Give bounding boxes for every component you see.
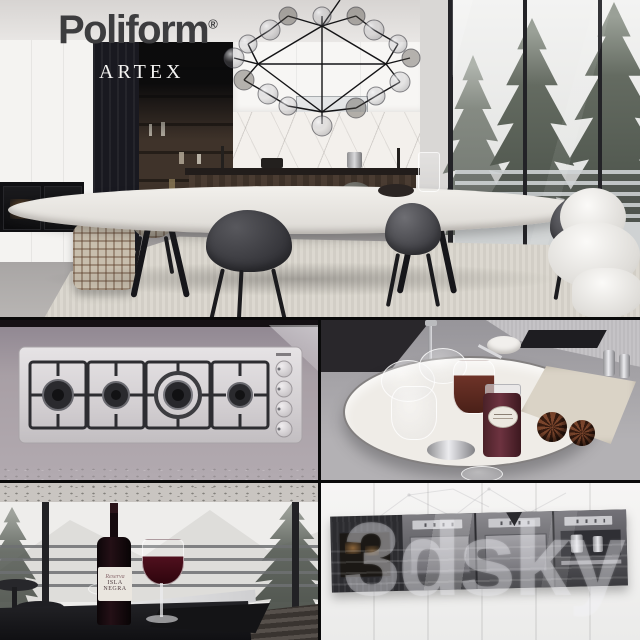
faucet-head <box>425 320 437 326</box>
hob-brand-mark <box>276 353 291 356</box>
kettle <box>347 152 362 168</box>
wine-label-script: Reserva <box>98 567 132 580</box>
chair-shell <box>385 203 441 255</box>
railing-post <box>42 502 49 614</box>
dining-chair-front <box>383 203 445 309</box>
faucet <box>221 146 224 168</box>
dining-chair-front <box>202 210 298 317</box>
watermark: 3dsky <box>343 501 623 620</box>
wine-bottle: Reserva ISLA NEGRA <box>96 503 132 625</box>
chair-leg <box>207 268 225 317</box>
panel-gas-hob <box>0 320 318 480</box>
glass-stem <box>160 583 163 617</box>
panel-tray-still-life <box>321 320 640 480</box>
glass-base-partial <box>461 466 503 480</box>
panel-kitchen-scene: Poliform® ARTEX <box>0 0 640 317</box>
panel-built-in-appliances: 3dsky <box>321 483 640 640</box>
faucet <box>397 148 400 168</box>
panel-wine-scene: Reserva ISLA NEGRA <box>0 483 318 640</box>
jam-jar-label <box>488 406 518 428</box>
chrome-canister <box>603 350 615 376</box>
chrome-lid <box>427 440 475 460</box>
geometric-chandelier <box>222 0 422 140</box>
chair-leg <box>271 268 289 317</box>
table-shadow <box>40 262 560 296</box>
oval-dining-table <box>8 186 588 234</box>
jam-jar <box>481 384 523 460</box>
brand-logo-text: Poliform <box>58 8 208 52</box>
chair-leg <box>426 253 440 307</box>
glass-tumbler <box>391 386 437 440</box>
gas-cooktop <box>18 346 303 444</box>
concrete-ceiling <box>0 483 318 502</box>
glass-bowl-with-wine <box>142 539 184 585</box>
chair-leg <box>236 270 243 317</box>
brand-logo: Poliform® <box>58 8 216 53</box>
pinecone <box>569 420 595 446</box>
wine-label-name: ISLA NEGRA <box>98 580 132 592</box>
wine-glass <box>140 539 184 629</box>
glass-foot <box>146 615 178 623</box>
chrome-canister <box>619 354 630 378</box>
collection-label: ARTEX <box>99 61 184 84</box>
collage-poliform-artex: Poliform® ARTEX <box>0 0 640 640</box>
railing-post <box>292 502 299 614</box>
wine-label: Reserva ISLA NEGRA <box>98 567 132 601</box>
registered-mark: ® <box>208 17 216 32</box>
chair-leg <box>386 253 400 307</box>
island-countertop <box>185 168 420 175</box>
cooking-pot <box>261 158 283 168</box>
glass-pitcher <box>418 152 440 192</box>
fur-fold <box>572 268 640 317</box>
pinecone <box>537 412 567 442</box>
sink-basin <box>519 330 607 348</box>
chair-shell <box>206 210 292 272</box>
dark-bowl <box>378 184 414 197</box>
terrazzo-counter-edge <box>0 466 318 480</box>
